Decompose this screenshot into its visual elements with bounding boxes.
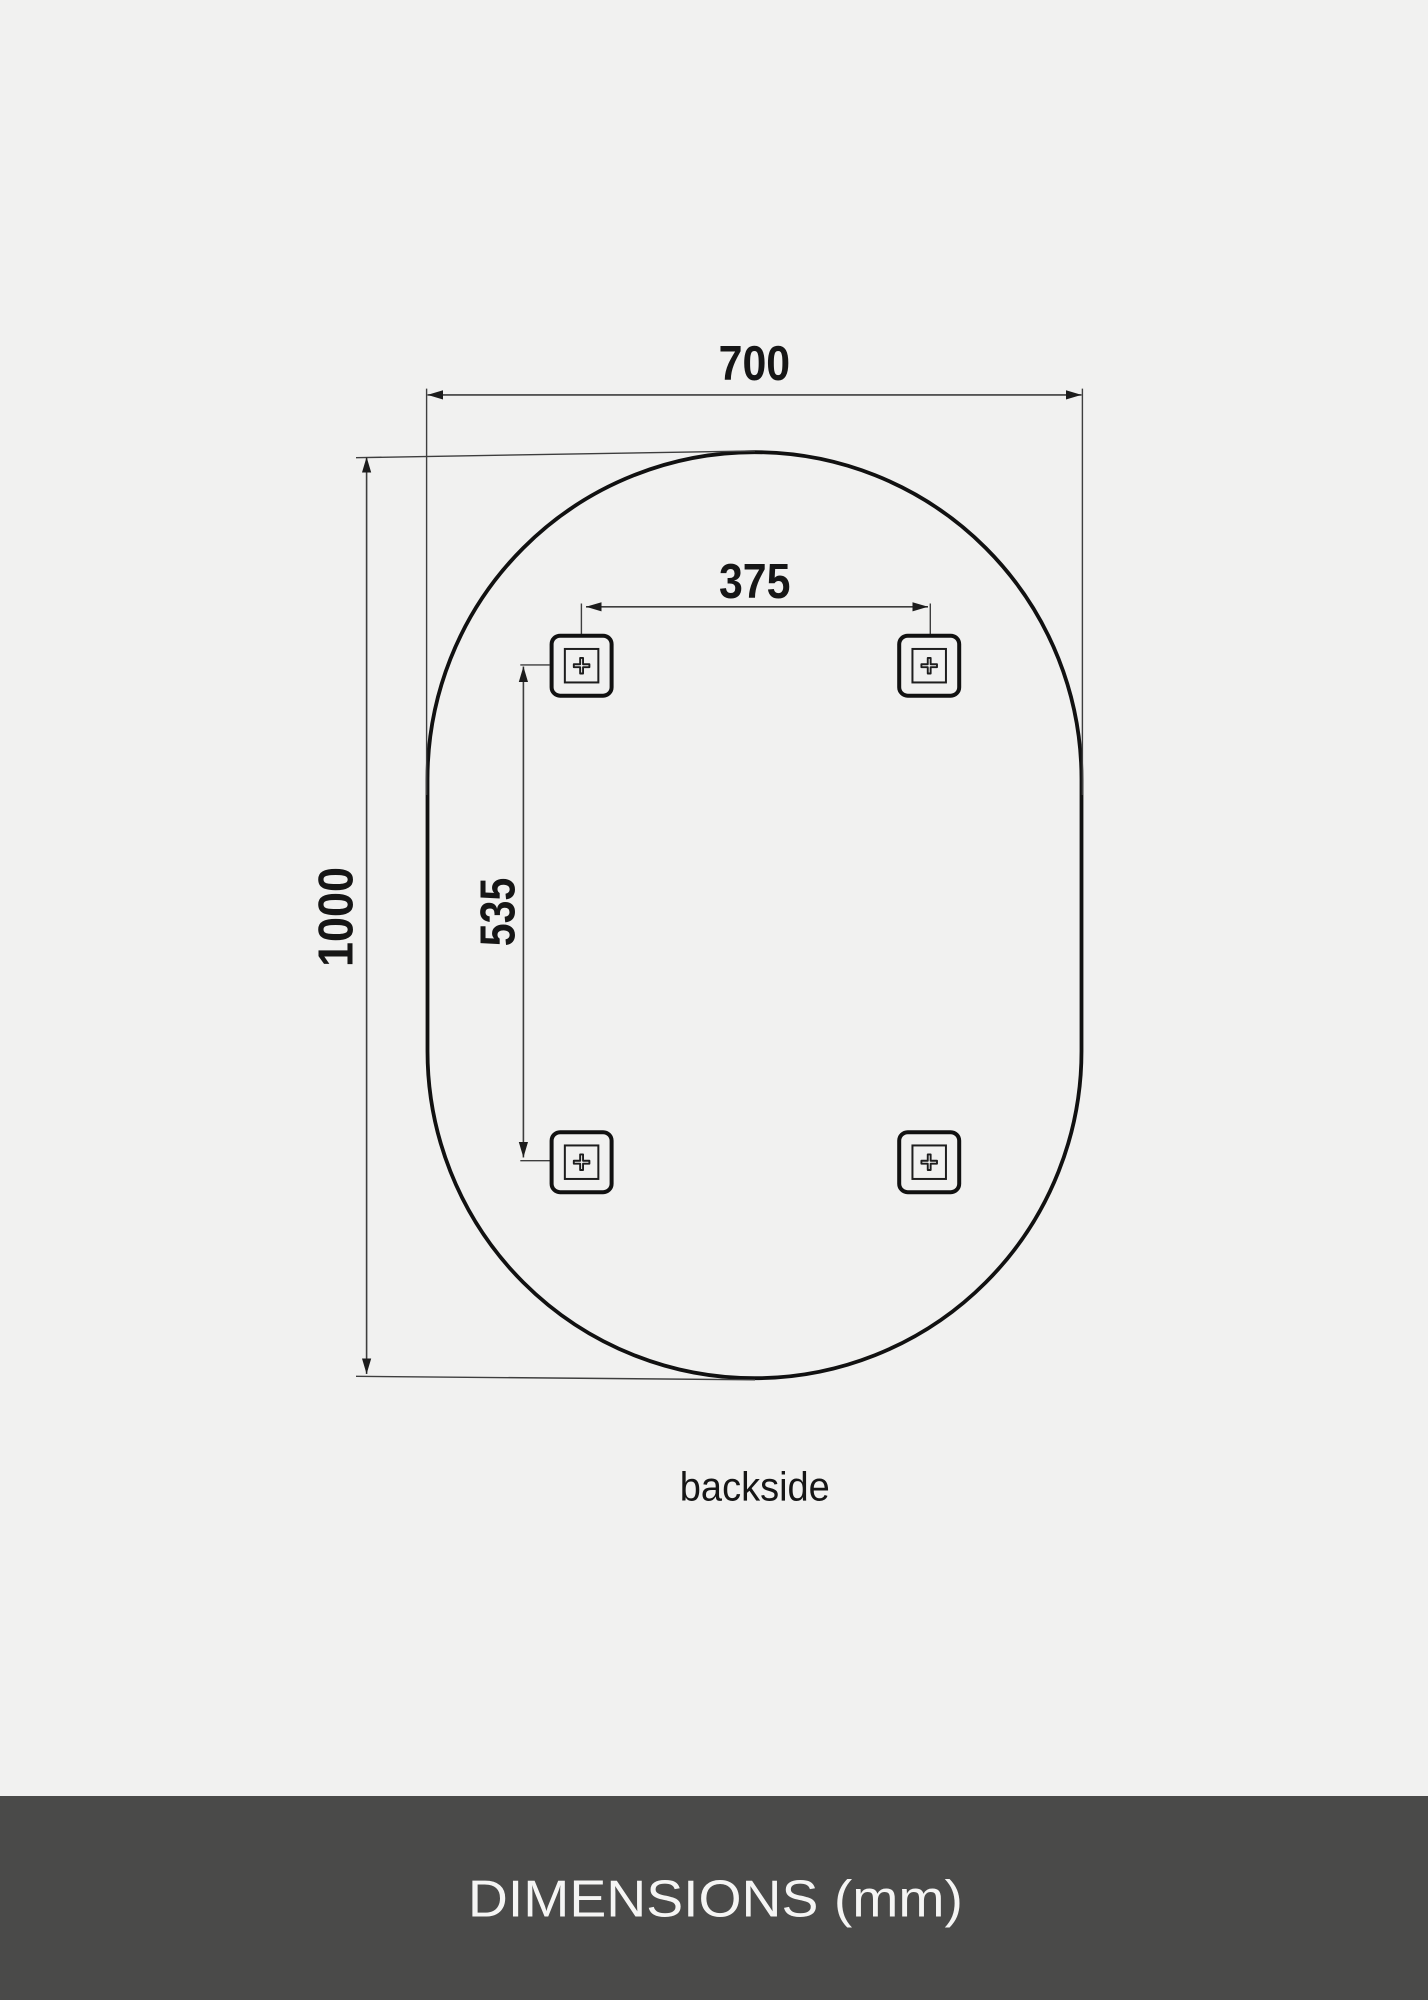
svg-text:1000: 1000 xyxy=(310,867,364,967)
svg-text:700: 700 xyxy=(719,337,791,391)
svg-text:375: 375 xyxy=(719,555,791,609)
svg-text:DIMENSIONS (mm): DIMENSIONS (mm) xyxy=(468,1869,963,1927)
svg-text:535: 535 xyxy=(472,878,526,947)
svg-text:backside: backside xyxy=(680,1464,830,1510)
